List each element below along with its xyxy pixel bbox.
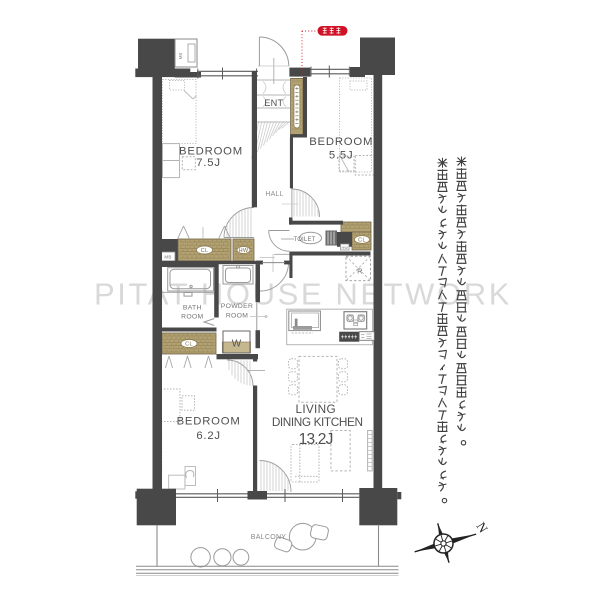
svg-text:HALL: HALL — [265, 191, 283, 198]
svg-text:CL: CL — [201, 248, 209, 254]
svg-text:R: R — [357, 267, 363, 276]
svg-text:7.5J: 7.5J — [196, 157, 221, 169]
svg-text:CL: CL — [185, 342, 193, 348]
svg-text:13.2J: 13.2J — [299, 431, 333, 448]
svg-text:MB: MB — [164, 255, 171, 260]
svg-text:TOILET: TOILET — [293, 237, 315, 243]
svg-text:HW: HW — [239, 248, 249, 254]
svg-text:BATH: BATH — [183, 304, 202, 311]
svg-text:BEDROOM: BEDROOM — [179, 145, 243, 157]
svg-text:BEDROOM: BEDROOM — [309, 136, 373, 148]
svg-text:CL: CL — [358, 238, 366, 244]
svg-text:ROOM: ROOM — [181, 314, 203, 321]
svg-text:ROOM: ROOM — [226, 313, 248, 320]
svg-text:HW: HW — [342, 246, 349, 250]
svg-text:6.2J: 6.2J — [196, 430, 221, 442]
svg-text:BALCONY: BALCONY — [251, 534, 287, 541]
svg-text:BEDROOM: BEDROOM — [177, 415, 241, 427]
svg-text:DINING KITCHEN: DINING KITCHEN — [272, 415, 363, 429]
svg-text:MB: MB — [178, 53, 183, 60]
svg-text:POWDER: POWDER — [221, 303, 253, 310]
svg-text:W: W — [232, 339, 242, 350]
svg-text:ENT: ENT — [264, 98, 283, 108]
svg-text:5.5J: 5.5J — [329, 149, 354, 161]
